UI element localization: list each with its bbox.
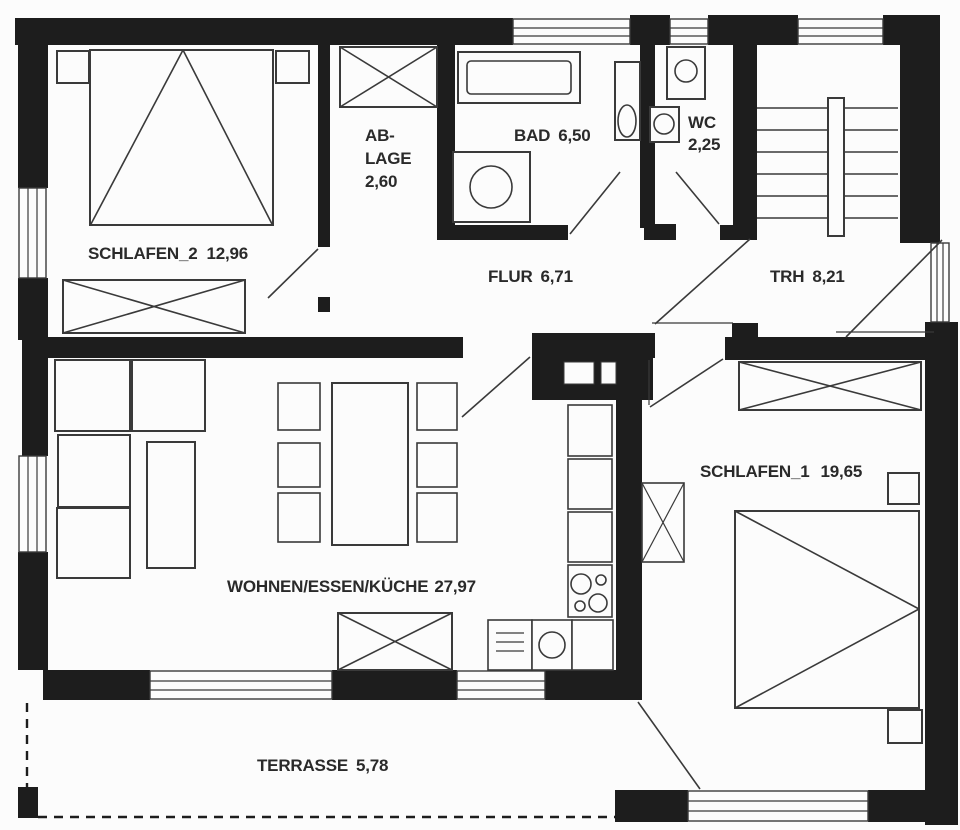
room-label-wc-area: 2,25 (688, 135, 720, 154)
room-label-bad: BAD6,50 (514, 126, 591, 145)
schlafen1-furniture (642, 362, 922, 743)
door-entrance (655, 239, 750, 324)
wohnen-furniture (55, 360, 613, 670)
bathtub-icon (458, 52, 580, 103)
floor-plan: SCHLAFEN_212,96 AB- LAGE 2,60 BAD6,50 WC… (0, 0, 960, 830)
room-label-ablage-area: 2,60 (365, 172, 397, 191)
schlafen2-furniture (57, 50, 309, 333)
ablage-furniture (340, 47, 437, 107)
room-label-terrasse: TERRASSE5,78 (257, 756, 388, 775)
room-label-trh: TRH8,21 (770, 267, 845, 286)
wardrobe-icon (739, 362, 921, 410)
wc-sink-icon (650, 107, 679, 142)
window-top-trh (798, 19, 883, 44)
wardrobe-icon (340, 47, 437, 107)
nightstand-icon (888, 710, 922, 743)
corner-cabinet-icon (572, 620, 613, 670)
window-bottom-wohnen-left (150, 671, 332, 699)
shaft-crossed-icon (642, 483, 684, 562)
door-schlafen1 (650, 359, 723, 407)
duct-shaft-icon (564, 362, 616, 384)
room-label-schlafen1: SCHLAFEN_119,65 (700, 462, 862, 481)
room-label-ablage-line2: LAGE (365, 149, 411, 168)
window-bottom-schlafen1 (688, 791, 868, 821)
room-label-wc: WC (688, 113, 716, 132)
wardrobe-icon (63, 280, 245, 333)
room-label-schlafen2: SCHLAFEN_212,96 (88, 244, 248, 263)
nightstand-icon (57, 51, 89, 83)
terrace-post (18, 787, 38, 818)
door-wc (676, 172, 719, 224)
stair-handrail-icon (828, 98, 844, 236)
toilet-icon (667, 47, 705, 99)
door-terrace (638, 702, 700, 789)
floor-plan-drawing: SCHLAFEN_212,96 AB- LAGE 2,60 BAD6,50 WC… (0, 0, 960, 830)
sideboard-icon (338, 613, 452, 670)
room-label-ablage-line1: AB- (365, 126, 395, 145)
window-top-bad (513, 19, 630, 44)
double-bed-icon (735, 511, 919, 708)
dishwasher-icon (488, 620, 532, 670)
double-bed-icon (90, 50, 273, 225)
sofa-icon (55, 360, 205, 578)
cooktop-icon (568, 565, 612, 617)
window-right-trh (931, 243, 949, 322)
door-schlafen2 (268, 249, 318, 298)
nightstand-icon (888, 473, 919, 504)
washing-machine-icon (453, 152, 530, 222)
room-label-wohnen: WOHNEN/ESSEN/KÜCHE27,97 (227, 577, 476, 596)
window-top-wc (670, 19, 708, 44)
door-flur-wohnen (462, 357, 530, 417)
window-bottom-wohnen-right (457, 671, 545, 699)
kitchen-sink-icon (532, 620, 572, 670)
room-label-flur: FLUR6,71 (488, 267, 573, 286)
kitchen-counter-icon (488, 405, 613, 670)
window-left-wohnen (19, 456, 46, 552)
door-bad (570, 172, 620, 234)
nightstand-icon (276, 51, 309, 83)
bathroom-sink-icon (615, 62, 640, 140)
window-left-schlafen2 (19, 188, 46, 278)
dining-table-icon (332, 383, 408, 545)
